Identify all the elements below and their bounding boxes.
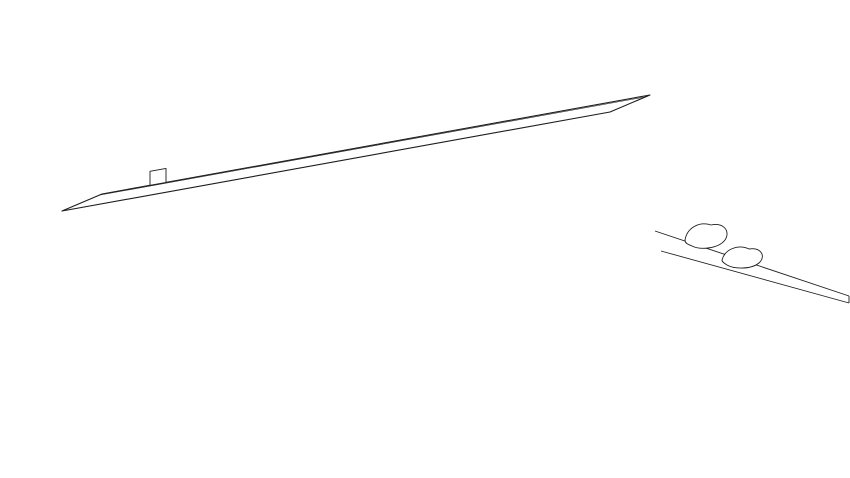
building-axonometric-diagram [0, 0, 850, 478]
diagram-canvas [0, 0, 850, 478]
